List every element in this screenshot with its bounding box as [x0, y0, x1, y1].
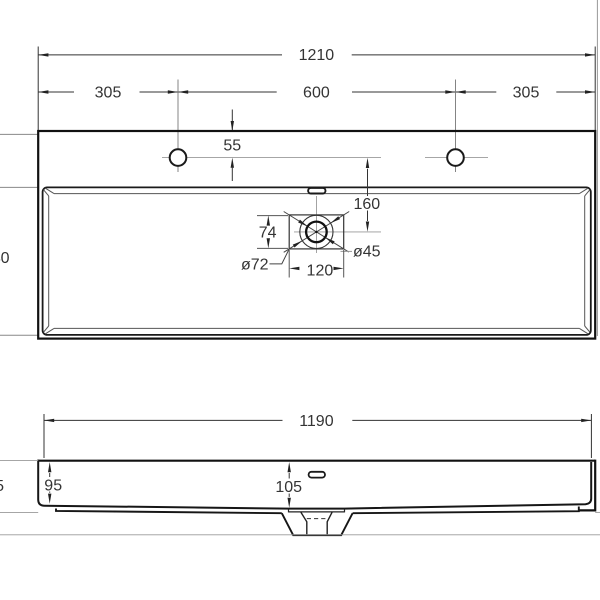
svg-text:ø72: ø72 [241, 257, 269, 274]
svg-text:305: 305 [513, 85, 540, 102]
svg-text:ø45: ø45 [353, 244, 381, 261]
svg-text:1210: 1210 [299, 47, 335, 64]
svg-text:74: 74 [259, 225, 277, 242]
svg-text:120: 120 [307, 262, 334, 279]
svg-text:95: 95 [44, 477, 62, 494]
svg-text:105: 105 [275, 479, 302, 496]
svg-text:5: 5 [0, 478, 4, 495]
svg-text:55: 55 [223, 138, 241, 155]
svg-text:440: 440 [0, 250, 10, 267]
svg-text:600: 600 [303, 85, 330, 102]
svg-text:160: 160 [353, 196, 380, 213]
svg-text:305: 305 [95, 85, 122, 102]
svg-text:1190: 1190 [299, 413, 334, 430]
